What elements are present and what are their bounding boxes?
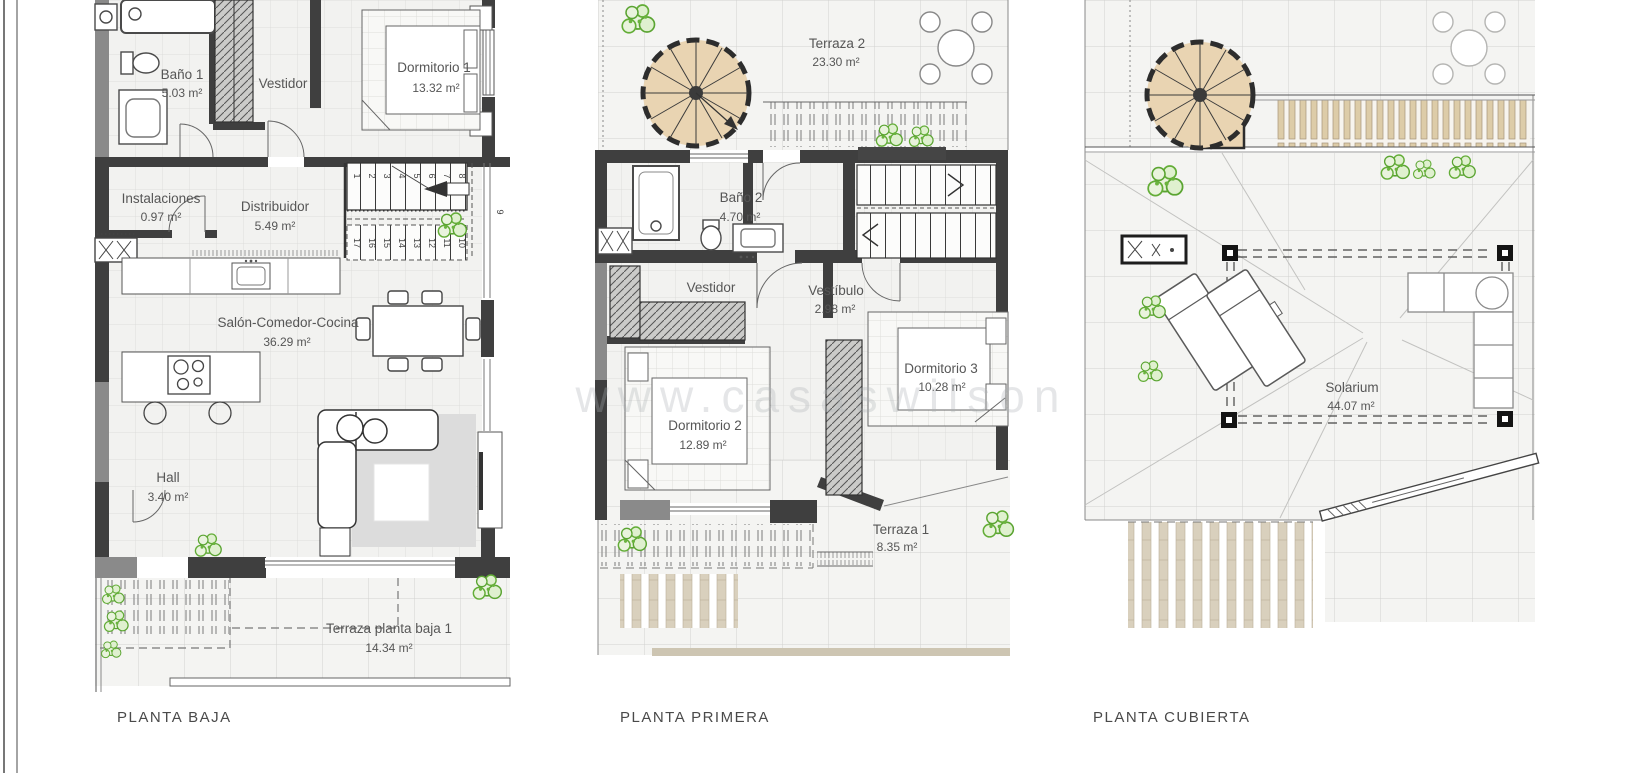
room-area-hall: 3.40 m² <box>148 490 189 504</box>
plan-planta-baja: 1 2 3 4 5 6 7 8 17 16 15 14 13 12 11 10 … <box>95 0 510 726</box>
planter <box>858 147 946 160</box>
hob-icon <box>168 356 210 394</box>
room-label-vestibulo: Vestíbulo <box>808 283 864 298</box>
stair-num: 1 <box>352 173 362 178</box>
stair-num: 10 <box>457 238 467 248</box>
side-table <box>320 528 350 556</box>
room-label-terraza1: Terraza 1 <box>873 522 929 537</box>
sheet-frame <box>4 0 17 773</box>
stair-num: 15 <box>382 238 392 248</box>
room-area-distribuidor: 5.49 m² <box>255 219 296 233</box>
stair-num: 9 <box>495 209 505 214</box>
stair-num: 16 <box>367 238 377 248</box>
watermark: www.casaswilson <box>575 370 1069 422</box>
room-area-dormitorio2: 12.89 m² <box>679 438 726 452</box>
room-area-bano2: 4.70 m² <box>720 210 761 224</box>
ac-unit <box>1122 236 1186 263</box>
room-area-instalaciones: 0.97 m² <box>141 210 182 224</box>
post-icon <box>1222 245 1238 261</box>
stair-num: 4 <box>397 173 407 178</box>
room-label-bano1: Baño 1 <box>161 67 204 82</box>
stair-num: 17 <box>352 238 362 248</box>
sink-icon <box>232 260 270 289</box>
room-label-distribuidor: Distribuidor <box>241 199 310 214</box>
plan-title-planta-cubierta: PLANTA CUBIERTA <box>1093 709 1251 726</box>
stair-num: 13 <box>412 238 422 248</box>
room-label-instalaciones: Instalaciones <box>122 191 201 206</box>
room-label-terraza2: Terraza 2 <box>809 36 865 51</box>
room-label-bano2: Baño 2 <box>720 190 763 205</box>
stair-num: 12 <box>427 238 437 248</box>
post-icon <box>1221 412 1237 428</box>
tv-icon <box>479 452 483 510</box>
room-label-salon: Salón-Comedor-Cocina <box>217 315 359 330</box>
stair-num: 2 <box>367 173 377 178</box>
stair-num: 5 <box>412 173 422 178</box>
room-area-solarium: 44.07 m² <box>1327 399 1374 413</box>
plan-title-planta-baja: PLANTA BAJA <box>117 709 232 726</box>
pergola-slats <box>763 102 967 147</box>
room-area-terraza2: 23.30 m² <box>812 55 859 69</box>
vestidor-wardrobe <box>215 0 253 122</box>
floorplan-sheet: 1 2 3 4 5 6 7 8 17 16 15 14 13 12 11 10 … <box>0 0 1638 773</box>
stair-num: 6 <box>427 173 437 178</box>
living-room <box>318 410 502 556</box>
room-area-bano1: 5.03 m² <box>162 86 203 100</box>
room-area-terraza-baja: 14.34 m² <box>365 641 412 655</box>
plan-title-planta-primera: PLANTA PRIMERA <box>620 709 770 726</box>
room-label-dormitorio1: Dormitorio 1 <box>397 60 471 75</box>
plan-planta-primera: Terraza 2 23.30 m² Baño 2 4.70 m² Vestid… <box>595 0 1013 726</box>
room-area-salon: 36.29 m² <box>263 335 310 349</box>
stair-num: 14 <box>397 238 407 248</box>
post-icon <box>1497 411 1513 427</box>
room-area-dormitorio1: 13.32 m² <box>412 81 459 95</box>
plan-planta-cubierta: Solarium 44.07 m² PLANTA CUBIERTA <box>1085 0 1539 726</box>
stair-num: 8 <box>457 173 467 178</box>
stair-num: 7 <box>442 173 452 178</box>
room-label-solarium: Solarium <box>1325 380 1378 395</box>
room-area-terraza1: 8.35 m² <box>877 540 918 554</box>
room-label-vestidor2: Vestidor <box>687 280 736 295</box>
stair-num: 3 <box>382 173 392 178</box>
stair-num: 11 <box>442 238 452 247</box>
post-icon <box>1497 245 1513 261</box>
room-area-vestibulo: 2.98 m² <box>815 302 856 316</box>
room-label-terraza-baja: Terraza planta baja 1 <box>326 621 452 636</box>
spiral-staircase-icon <box>1147 42 1253 148</box>
room-label-hall: Hall <box>156 470 179 485</box>
room-label-vestidor: Vestidor <box>259 76 308 91</box>
